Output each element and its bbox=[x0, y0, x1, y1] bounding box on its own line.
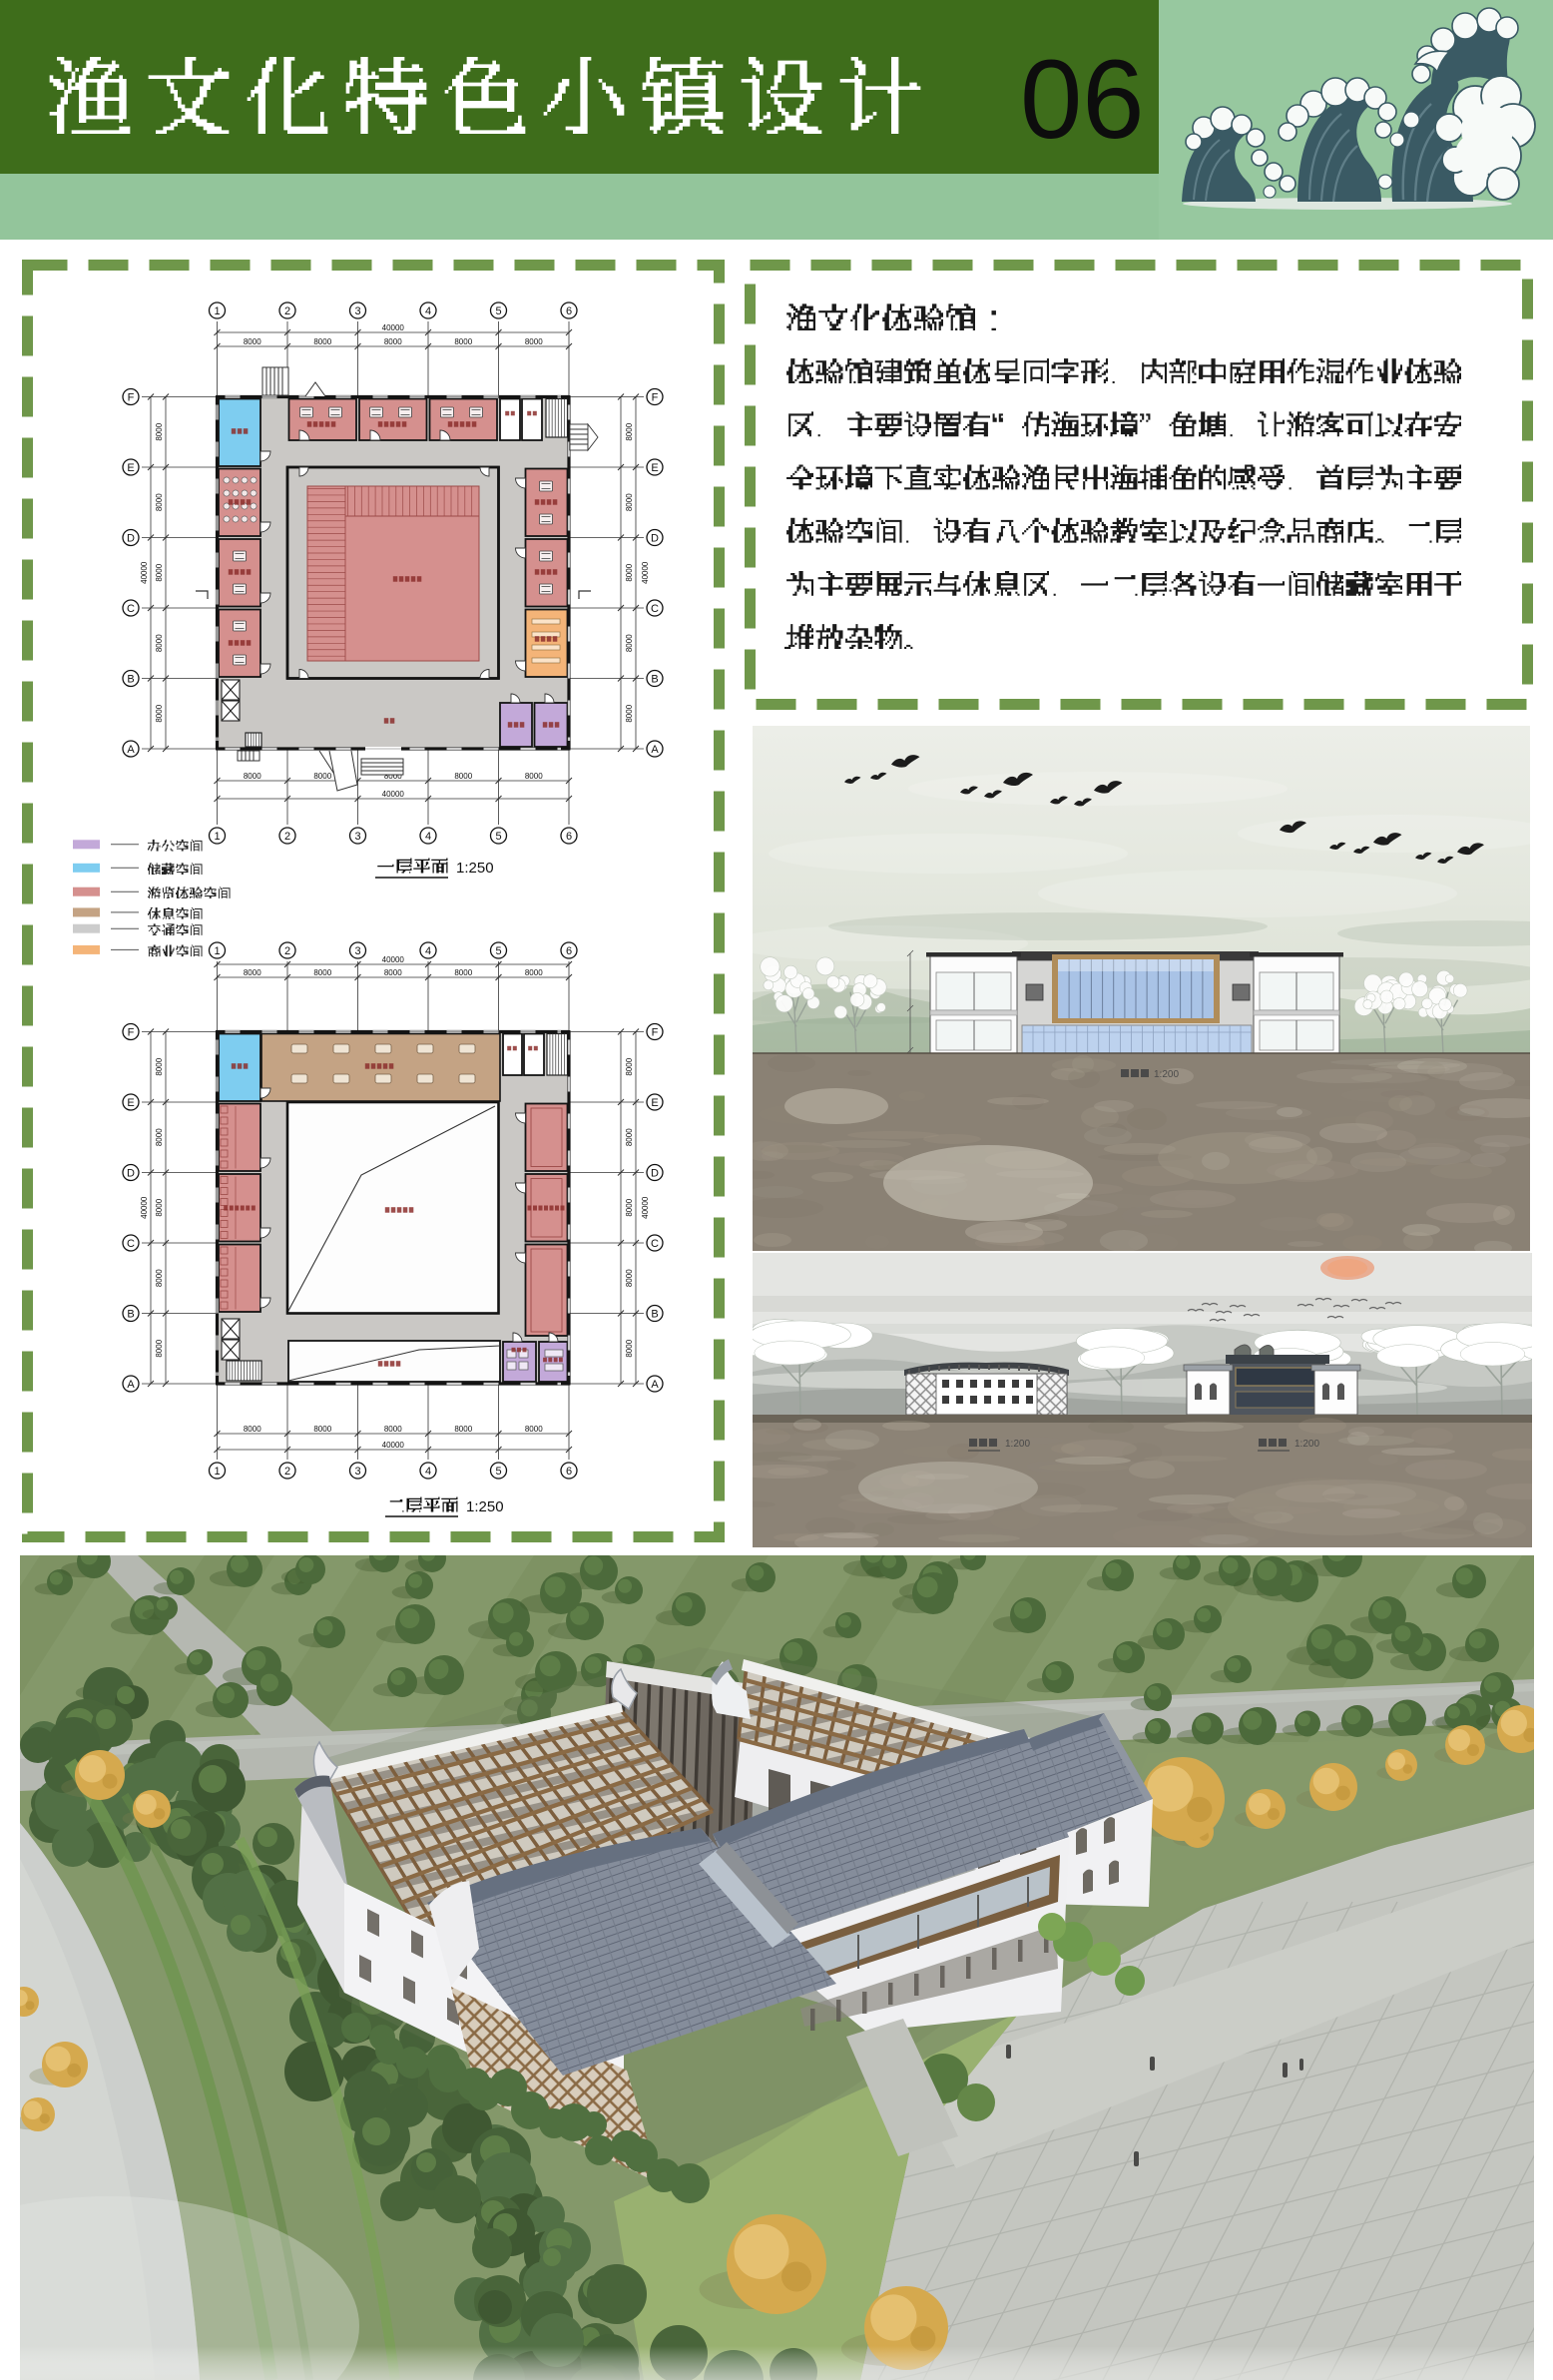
svg-text:B: B bbox=[651, 673, 658, 685]
svg-text:4: 4 bbox=[425, 1466, 431, 1478]
svg-text:2: 2 bbox=[284, 831, 290, 843]
svg-text:1:200: 1:200 bbox=[1294, 1439, 1319, 1450]
svg-text:5: 5 bbox=[495, 831, 501, 843]
svg-text:8000: 8000 bbox=[155, 1057, 164, 1075]
svg-text:40000: 40000 bbox=[641, 1196, 650, 1219]
svg-text:D: D bbox=[651, 1167, 659, 1179]
svg-text:06: 06 bbox=[1020, 37, 1145, 162]
svg-text:8000: 8000 bbox=[244, 772, 261, 781]
svg-text:8000: 8000 bbox=[625, 1269, 634, 1287]
svg-text:8000: 8000 bbox=[625, 634, 634, 652]
svg-text:40000: 40000 bbox=[140, 1196, 149, 1219]
svg-text:3: 3 bbox=[354, 945, 360, 957]
svg-text:E: E bbox=[651, 462, 658, 474]
svg-text:8000: 8000 bbox=[155, 1269, 164, 1287]
svg-text:E: E bbox=[127, 462, 134, 474]
svg-text:4: 4 bbox=[425, 831, 431, 843]
svg-text:D: D bbox=[127, 532, 135, 544]
svg-text:40000: 40000 bbox=[382, 1441, 405, 1450]
svg-text:F: F bbox=[652, 391, 659, 403]
svg-text:8000: 8000 bbox=[384, 968, 402, 977]
svg-text:8000: 8000 bbox=[625, 704, 634, 722]
svg-text:3: 3 bbox=[354, 831, 360, 843]
svg-text:5: 5 bbox=[495, 305, 501, 317]
svg-text:F: F bbox=[652, 1026, 659, 1038]
svg-text:8000: 8000 bbox=[155, 634, 164, 652]
svg-text:6: 6 bbox=[566, 945, 572, 957]
svg-text:8000: 8000 bbox=[454, 772, 472, 781]
svg-text:40000: 40000 bbox=[382, 955, 405, 964]
svg-text:A: A bbox=[127, 744, 135, 756]
svg-text:C: C bbox=[127, 603, 135, 615]
svg-text:2: 2 bbox=[284, 1466, 290, 1478]
svg-text:8000: 8000 bbox=[454, 968, 472, 977]
svg-text:A: A bbox=[651, 1379, 659, 1391]
svg-text:8000: 8000 bbox=[313, 772, 331, 781]
svg-text:8000: 8000 bbox=[625, 1198, 634, 1216]
svg-text:E: E bbox=[127, 1097, 134, 1109]
svg-text:4: 4 bbox=[425, 305, 431, 317]
svg-text:8000: 8000 bbox=[525, 337, 543, 346]
svg-text:5: 5 bbox=[495, 1466, 501, 1478]
svg-text:1:250: 1:250 bbox=[466, 1498, 504, 1515]
svg-text:40000: 40000 bbox=[382, 323, 405, 332]
svg-text:8000: 8000 bbox=[525, 968, 543, 977]
svg-text:8000: 8000 bbox=[454, 1425, 472, 1434]
svg-text:8000: 8000 bbox=[625, 493, 634, 511]
svg-text:40000: 40000 bbox=[140, 561, 149, 584]
svg-text:6: 6 bbox=[566, 831, 572, 843]
svg-text:8000: 8000 bbox=[155, 493, 164, 511]
svg-text:8000: 8000 bbox=[155, 1128, 164, 1146]
svg-text:8000: 8000 bbox=[625, 422, 634, 440]
svg-text:8000: 8000 bbox=[525, 1425, 543, 1434]
svg-text:8000: 8000 bbox=[625, 1339, 634, 1357]
svg-text:C: C bbox=[651, 603, 659, 615]
svg-text:8000: 8000 bbox=[244, 337, 261, 346]
svg-text:40000: 40000 bbox=[641, 561, 650, 584]
svg-text:4: 4 bbox=[425, 945, 431, 957]
svg-text:1:200: 1:200 bbox=[1005, 1439, 1030, 1450]
svg-text:1: 1 bbox=[214, 831, 220, 843]
svg-text:8000: 8000 bbox=[155, 422, 164, 440]
svg-text:8000: 8000 bbox=[625, 1057, 634, 1075]
svg-text:A: A bbox=[651, 744, 659, 756]
svg-text:8000: 8000 bbox=[313, 1425, 331, 1434]
svg-text:1: 1 bbox=[214, 945, 220, 957]
svg-text:C: C bbox=[127, 1238, 135, 1250]
svg-text:1:200: 1:200 bbox=[1154, 1069, 1179, 1080]
svg-text:3: 3 bbox=[354, 305, 360, 317]
svg-text:E: E bbox=[651, 1097, 658, 1109]
svg-text:8000: 8000 bbox=[313, 968, 331, 977]
svg-text:8000: 8000 bbox=[155, 1198, 164, 1216]
svg-text:8000: 8000 bbox=[384, 1425, 402, 1434]
svg-text:8000: 8000 bbox=[244, 968, 261, 977]
svg-text:1: 1 bbox=[214, 1466, 220, 1478]
svg-text:8000: 8000 bbox=[155, 1339, 164, 1357]
svg-text:F: F bbox=[128, 1026, 135, 1038]
svg-text:5: 5 bbox=[495, 945, 501, 957]
svg-text:C: C bbox=[651, 1238, 659, 1250]
svg-text:2: 2 bbox=[284, 945, 290, 957]
svg-text:B: B bbox=[127, 1308, 134, 1320]
svg-text:40000: 40000 bbox=[382, 790, 405, 799]
svg-text:2: 2 bbox=[284, 305, 290, 317]
svg-text:8000: 8000 bbox=[155, 563, 164, 581]
svg-text:6: 6 bbox=[566, 1466, 572, 1478]
svg-text:8000: 8000 bbox=[525, 772, 543, 781]
svg-text:8000: 8000 bbox=[155, 704, 164, 722]
svg-text:1: 1 bbox=[214, 305, 220, 317]
svg-text:B: B bbox=[651, 1308, 658, 1320]
svg-text:A: A bbox=[127, 1379, 135, 1391]
svg-text:8000: 8000 bbox=[244, 1425, 261, 1434]
svg-text:8000: 8000 bbox=[454, 337, 472, 346]
svg-text:8000: 8000 bbox=[313, 337, 331, 346]
svg-text:3: 3 bbox=[354, 1466, 360, 1478]
svg-text:D: D bbox=[127, 1167, 135, 1179]
svg-text:D: D bbox=[651, 532, 659, 544]
svg-text:F: F bbox=[128, 391, 135, 403]
svg-text:6: 6 bbox=[566, 305, 572, 317]
svg-text:1:250: 1:250 bbox=[456, 860, 494, 877]
svg-text:B: B bbox=[127, 673, 134, 685]
svg-text:8000: 8000 bbox=[384, 337, 402, 346]
svg-text:8000: 8000 bbox=[625, 1128, 634, 1146]
svg-text:8000: 8000 bbox=[625, 563, 634, 581]
